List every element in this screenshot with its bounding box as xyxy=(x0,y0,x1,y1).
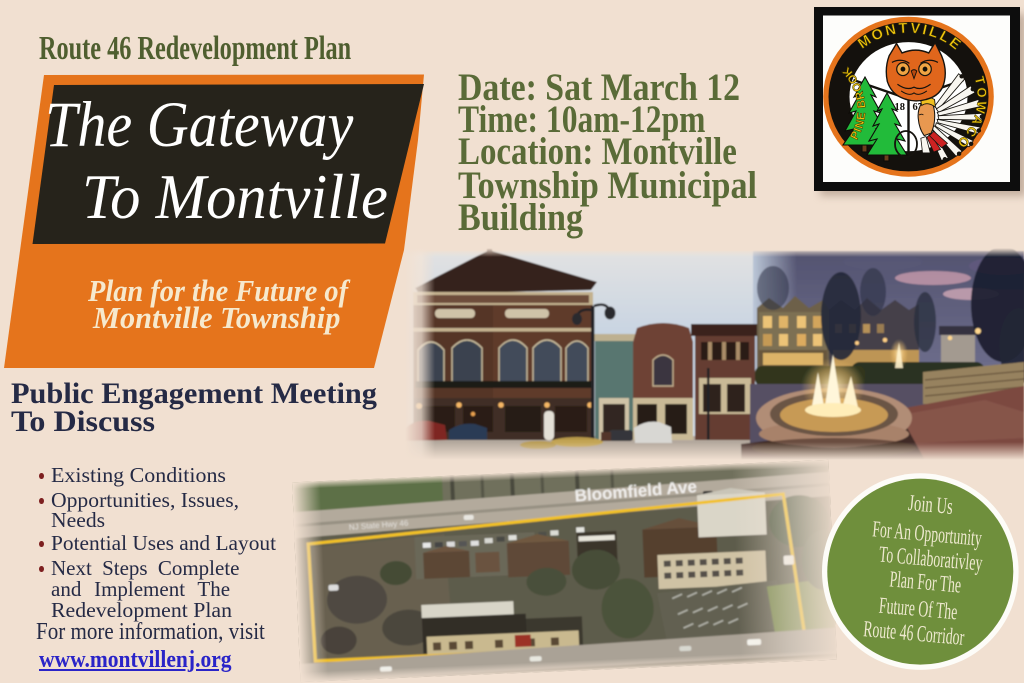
svg-text:Join Us: Join Us xyxy=(907,491,954,520)
svg-text:18: 18 xyxy=(895,102,906,113)
